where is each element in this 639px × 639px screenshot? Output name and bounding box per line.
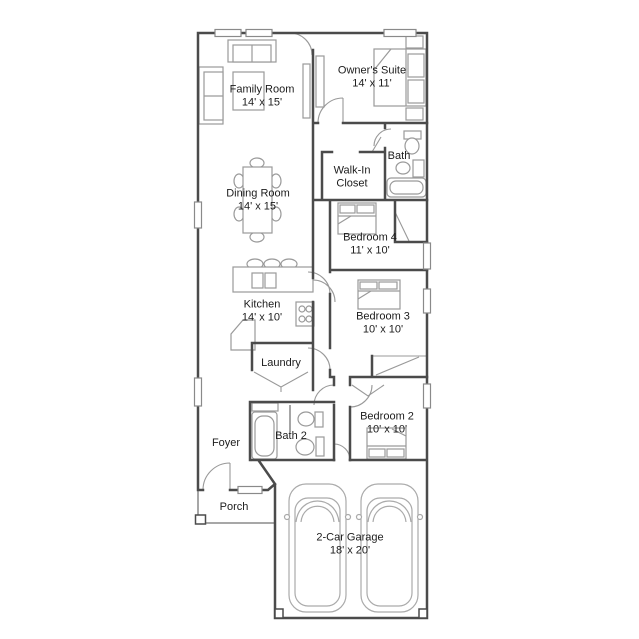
window-front (238, 487, 262, 494)
window-foyer (195, 378, 202, 406)
room-label-porch: Porch (220, 501, 249, 514)
garage-corner-left (275, 609, 283, 618)
window-family-room-1 (215, 30, 241, 37)
porch-column (196, 515, 206, 524)
closet-door-leaf (372, 137, 381, 152)
window-dining (195, 202, 202, 228)
room-label-bedroom2: Bedroom 2 10' x 10' (360, 411, 414, 436)
room-name: 2-Car Garage (316, 532, 383, 545)
room-name: Bath 2 (275, 430, 307, 443)
room-name: Foyer (212, 437, 240, 450)
room-name: Bedroom 2 (360, 411, 414, 424)
hall-door-arc (313, 280, 335, 302)
room-label-bedroom4: Bedroom 4 11' x 10' (343, 232, 397, 257)
room-name: Bedroom 4 (343, 232, 397, 245)
room-label-bath2: Bath 2 (275, 430, 307, 443)
room-label-owners-suite: Owner's Suite 14' x 11' (338, 65, 406, 90)
bedroom4-closet-door (395, 212, 409, 241)
room-name: Dining Room (226, 188, 290, 201)
room-label-bath: Bath (388, 150, 411, 163)
room-label-family-room: Family Room 14' x 15' (230, 84, 295, 109)
laundry-bifold-doors (254, 372, 308, 392)
bedroom3-door-arc (308, 348, 330, 370)
room-name: Bath (388, 150, 411, 163)
window-bedroom2 (424, 384, 431, 408)
room-name: Porch (220, 501, 249, 514)
room-name: Bedroom 3 (356, 311, 410, 324)
garage-corner-right (419, 609, 427, 618)
interior-walls (250, 50, 427, 460)
garage-entry-door-arc (334, 444, 350, 460)
bath-fixtures (387, 131, 426, 197)
room-name: Owner's Suite (338, 65, 406, 78)
room-label-dining-room: Dining Room 14' x 15' (226, 188, 290, 213)
room-dims: 14' x 10' (242, 311, 282, 324)
room-label-kitchen: Kitchen 14' x 10' (242, 299, 282, 324)
bedroom3-closet-doors (372, 356, 427, 375)
room-dims: 11' x 10' (343, 244, 397, 257)
bedroom2-closet-doors (352, 385, 384, 396)
floor-plan: Family Room 14' x 15' Owner's Suite 14' … (0, 0, 639, 639)
front-door-arc (203, 463, 230, 490)
room-dims: 10' x 10' (360, 423, 414, 436)
family-room-entry-door-arc (290, 33, 312, 55)
room-name: Kitchen (242, 299, 282, 312)
window-bedroom4 (424, 243, 431, 269)
room-label-foyer: Foyer (212, 437, 240, 450)
room-label-bedroom3: Bedroom 3 10' x 10' (356, 311, 410, 336)
room-dims: 10' x 10' (356, 323, 410, 336)
bedroom4-furniture (338, 203, 376, 234)
room-label-garage: 2-Car Garage 18' x 20' (316, 532, 383, 557)
room-dims: 14' x 11' (338, 77, 406, 90)
bedroom3-furniture (358, 280, 400, 309)
room-dims: 18' x 20' (316, 544, 383, 557)
room-dims: 14' x 15' (230, 96, 295, 109)
room-name: Walk-In Closet (321, 165, 383, 190)
room-label-walk-in-closet: Walk-In Closet (321, 165, 383, 190)
room-name: Family Room (230, 84, 295, 97)
family-room-furniture (199, 40, 310, 124)
window-bedroom3 (424, 289, 431, 313)
window-family-room-2 (246, 30, 272, 37)
room-name: Laundry (261, 357, 301, 370)
window-owners-suite (384, 30, 416, 37)
room-dims: 14' x 15' (226, 200, 290, 213)
room-label-laundry: Laundry (261, 357, 301, 370)
